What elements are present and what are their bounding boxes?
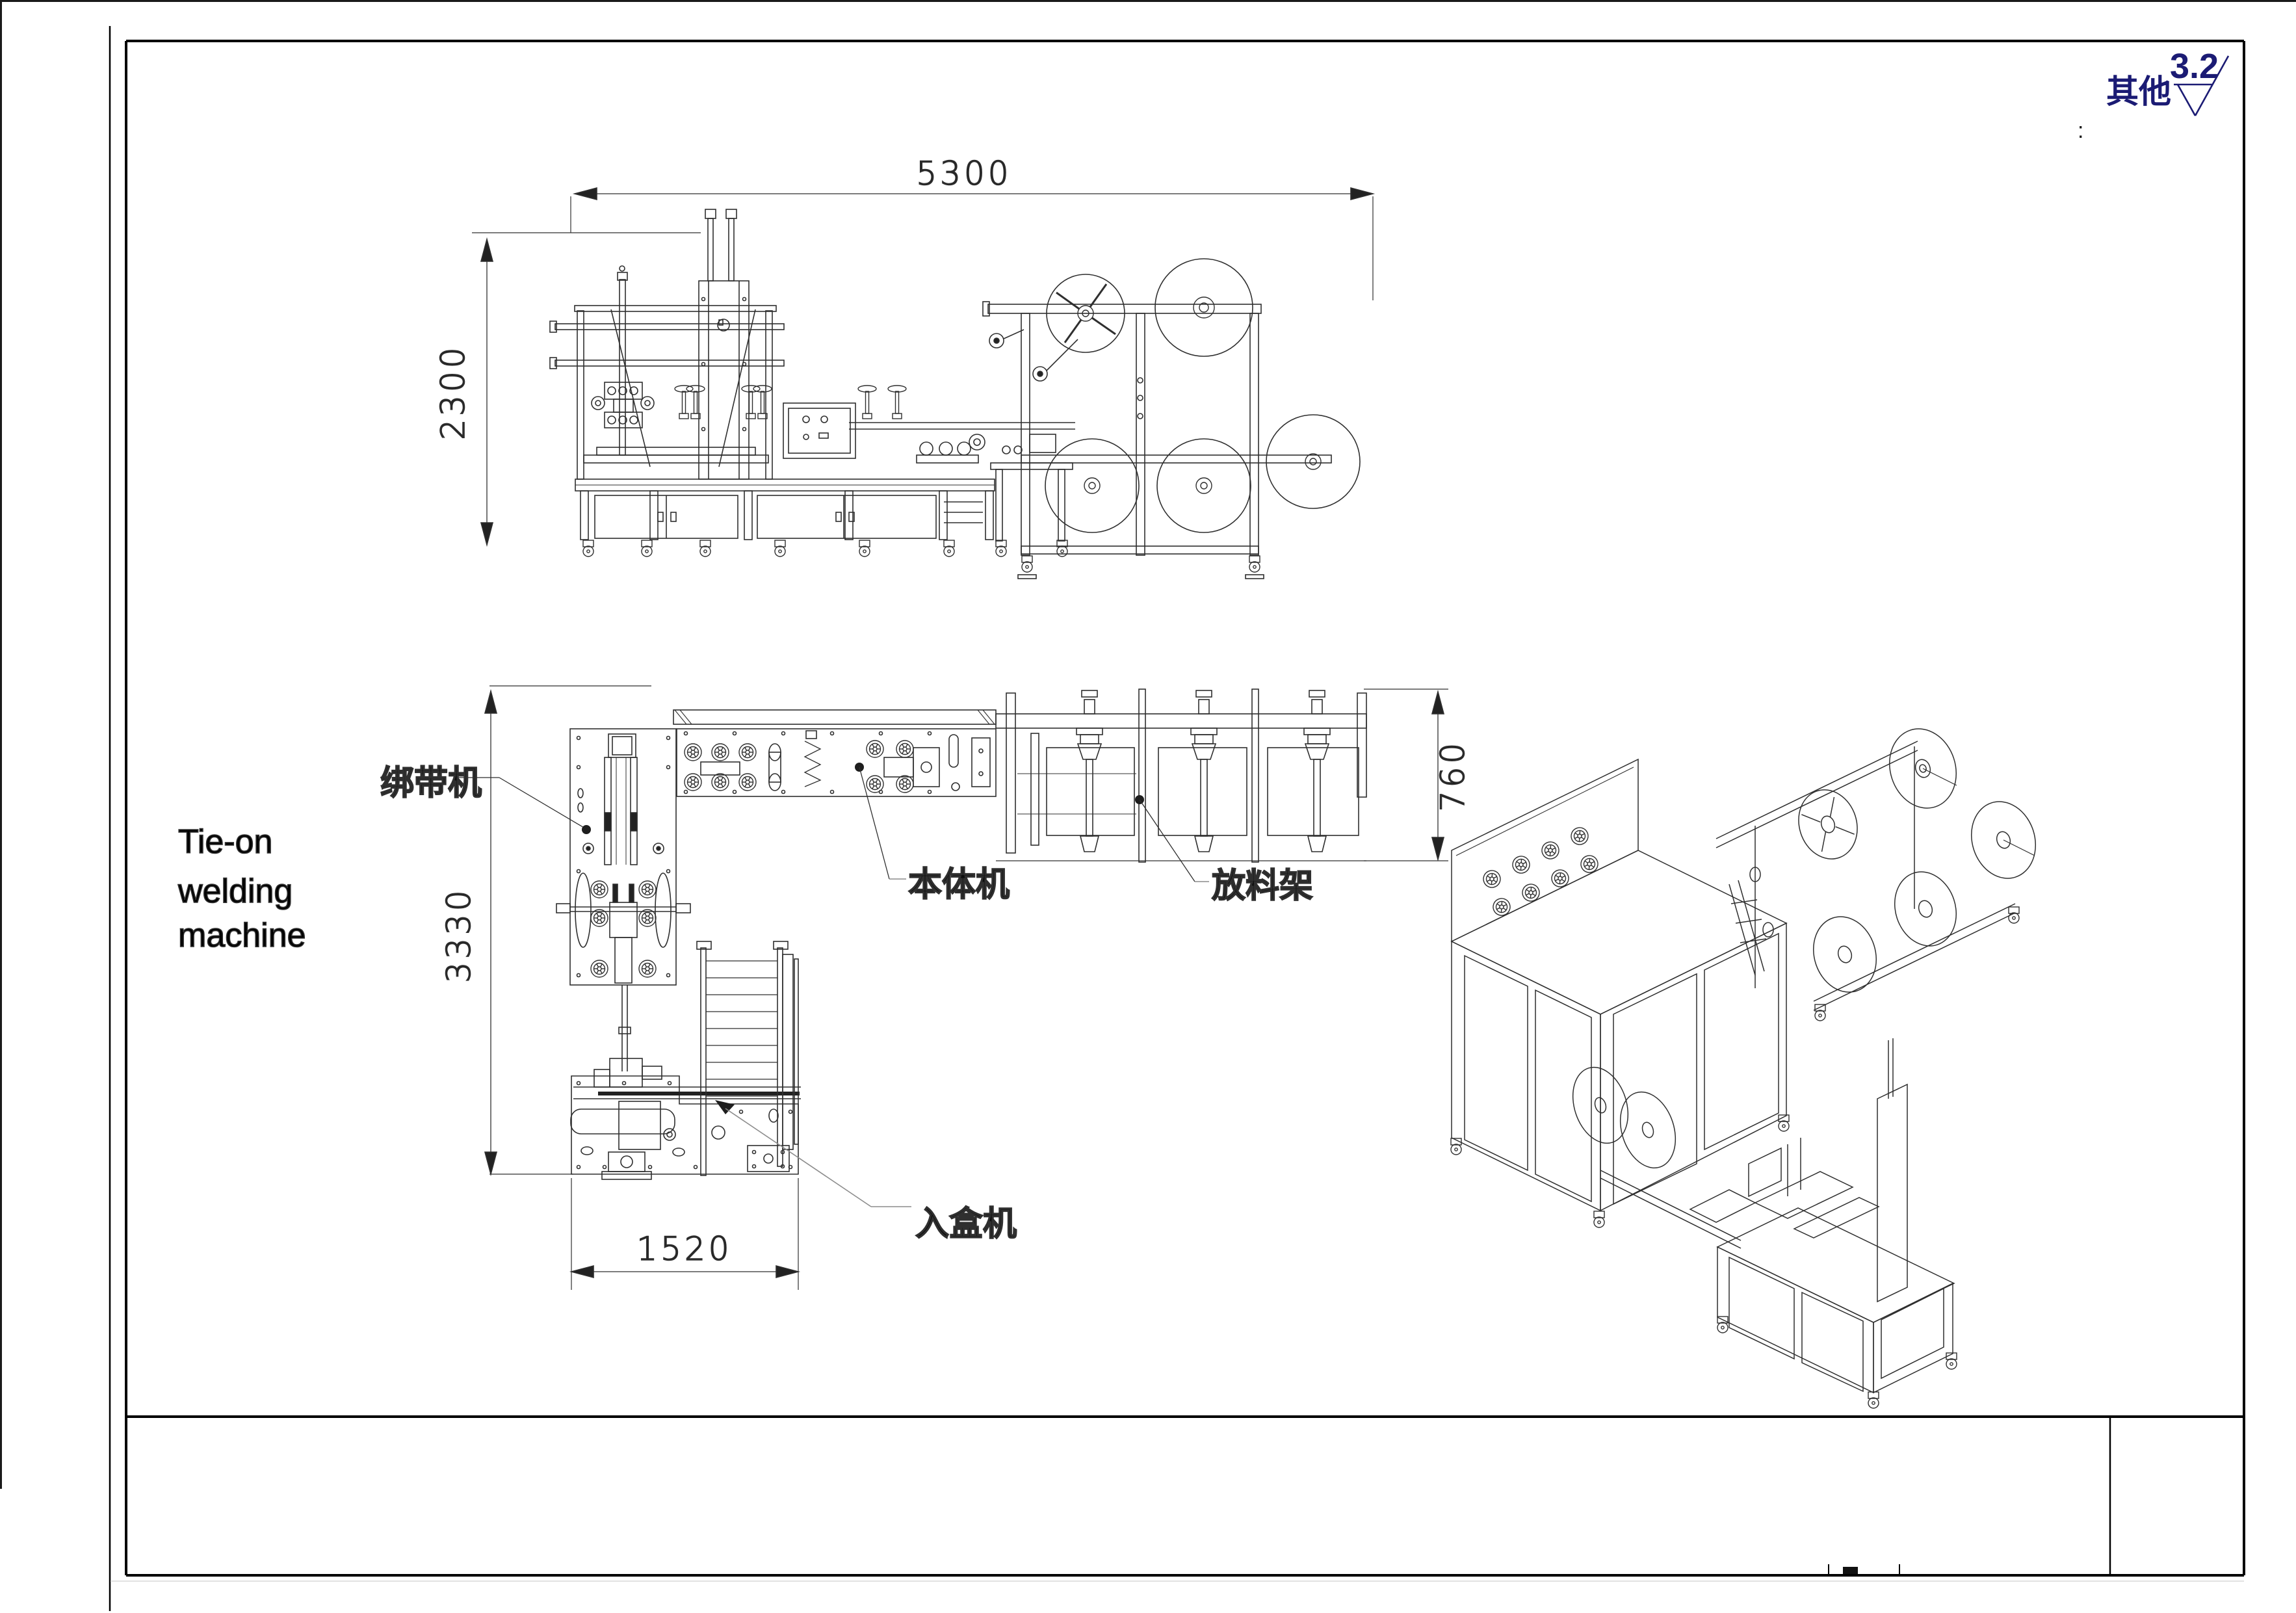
label-tie-on: Tie-on welding machine xyxy=(177,823,306,954)
material-rack-plan xyxy=(996,689,1366,862)
iso-main-machine xyxy=(1451,759,1789,1227)
cad-drawing-canvas: 其他 3.2 : 5300 2300 xyxy=(0,0,2296,1613)
strap-machine-text: 绑带机 xyxy=(380,765,482,802)
iso-reel-rack xyxy=(1716,720,2045,1021)
dim-1520-text: 1520 xyxy=(636,1230,732,1268)
front-elevation-view: 5300 2300 xyxy=(434,155,1373,579)
tie-on-line1: Tie-on xyxy=(178,823,272,861)
dim-2300-text: 2300 xyxy=(434,344,472,439)
box-inserter-plan xyxy=(571,941,801,1179)
finish-scope-label: 其他 xyxy=(2106,73,2171,110)
iso-guide-rollers xyxy=(1729,867,1773,975)
tie-on-line3: machine xyxy=(178,917,306,954)
plan-view: 3330 760 1520 xyxy=(177,686,1472,1290)
label-material-rack: 放料架 xyxy=(1135,795,1313,905)
surface-finish-note: 其他 3.2 : xyxy=(2078,47,2228,143)
dim-5300-text: 5300 xyxy=(916,155,1011,192)
dim-box-width: 1520 xyxy=(571,1178,798,1290)
cad-sheet: 其他 3.2 : 5300 2300 xyxy=(0,0,2296,1613)
roughness-value: 3.2 xyxy=(2170,47,2219,86)
rack-spindles xyxy=(1076,690,1330,852)
label-strap-machine: 绑带机 xyxy=(380,765,591,834)
main-body-text: 本体机 xyxy=(908,866,1010,904)
dim-760-text: 760 xyxy=(1434,740,1472,811)
window-top-edge xyxy=(0,0,2296,2)
main-body-plan xyxy=(673,710,996,796)
welding-machine-front xyxy=(550,209,1075,557)
isometric-view xyxy=(1451,720,2045,1408)
dim-overall-width: 5300 xyxy=(571,155,1373,300)
dim-3330-text: 3330 xyxy=(440,887,478,982)
window-left-edge xyxy=(0,0,2,1489)
box-inserter-text: 入盒机 xyxy=(915,1205,1017,1243)
note-colon: : xyxy=(2078,118,2083,143)
dim-overall-height: 2300 xyxy=(434,233,701,545)
strap-machine-plan xyxy=(556,729,690,985)
material-rack-text: 放料架 xyxy=(1212,867,1313,905)
dim-rack-depth: 760 xyxy=(1364,689,1472,861)
tie-on-line2: welding xyxy=(177,872,293,910)
reel-stand-front xyxy=(983,259,1360,579)
fold-mark xyxy=(1843,1567,1858,1574)
leader-dot xyxy=(582,825,591,834)
